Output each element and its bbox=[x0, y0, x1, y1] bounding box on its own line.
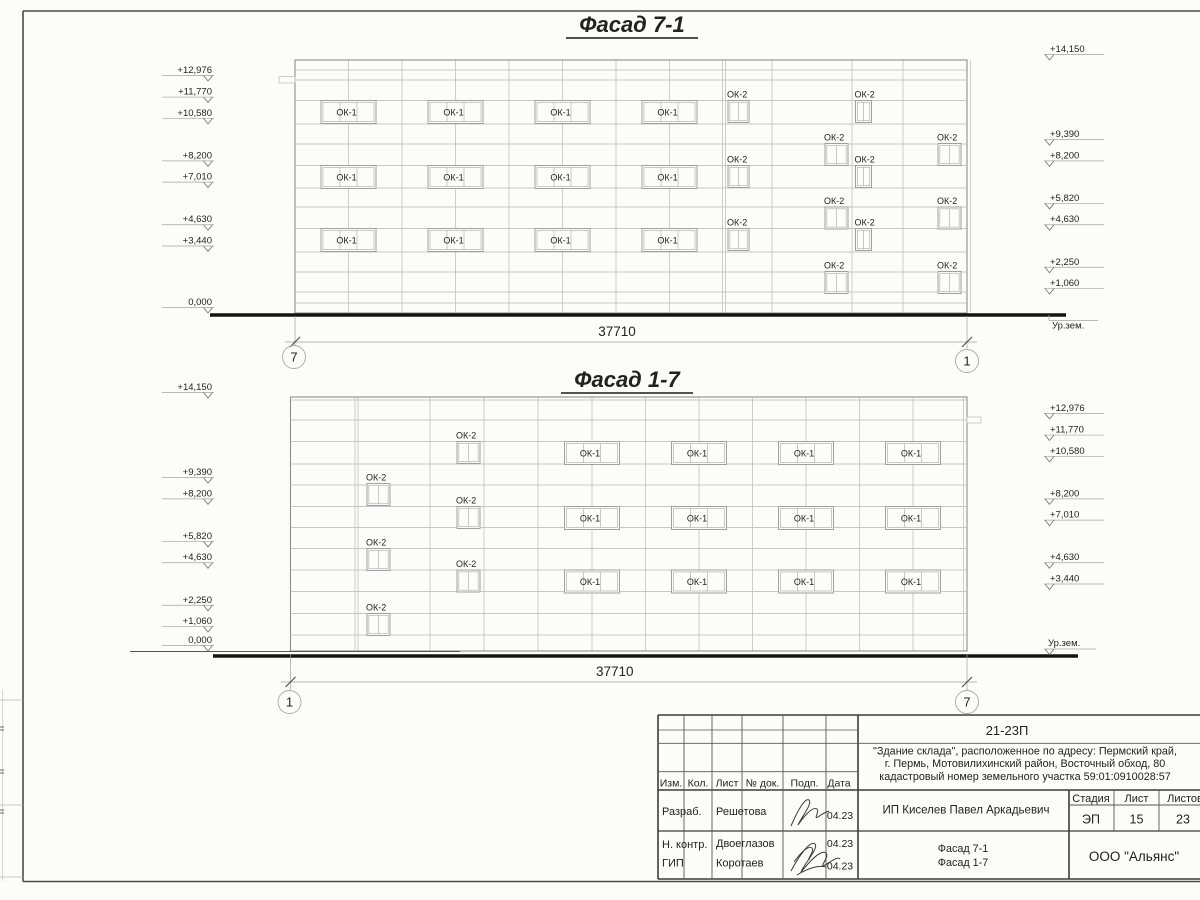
elevation-mark-value: +5,820 bbox=[183, 531, 212, 542]
sheets-header: Листов bbox=[1167, 793, 1200, 805]
window-label-ok2: ОК-2 bbox=[937, 133, 957, 143]
window-label-ok1: ОК-1 bbox=[443, 173, 463, 183]
elevation-mark-value: +11,770 bbox=[1050, 425, 1084, 436]
window-label-ok1: ОК-1 bbox=[657, 236, 677, 246]
drawing-sheet: Фасад 7-1ОК-1ОК-1ОК-1ОК-1ОК-1ОК-1ОК-1ОК-… bbox=[0, 0, 1200, 900]
elevation-mark-value: +9,390 bbox=[183, 467, 212, 478]
elevation-mark-value: +8,200 bbox=[1050, 150, 1079, 161]
stage-value: ЭП bbox=[1082, 813, 1100, 827]
dimension-value: 37710 bbox=[596, 664, 634, 679]
window-label-ok2: ОК-2 bbox=[824, 261, 844, 271]
elevation-mark-value: +14,150 bbox=[1050, 44, 1085, 55]
axis-number: 1 bbox=[963, 354, 970, 369]
project-description-line: кадастровый номер земельного участка 59:… bbox=[879, 771, 1170, 783]
window-label-ok1: ОК-1 bbox=[687, 514, 707, 524]
window-label-ok1: ОК-1 bbox=[687, 577, 707, 587]
revision-header: Изм. bbox=[660, 778, 683, 790]
window-label-ok1: ОК-1 bbox=[580, 577, 600, 587]
client-name: ИП Киселев Павел Аркадьевич bbox=[883, 805, 1050, 817]
axis-number: 1 bbox=[286, 695, 293, 710]
revision-header: Подп. bbox=[791, 778, 819, 790]
doc-number: 21-23П bbox=[986, 723, 1029, 738]
signer-name: Двоеглазов bbox=[716, 838, 775, 850]
window-label-ok2: ОК-2 bbox=[366, 538, 386, 548]
elevation-mark-value: 0,000 bbox=[188, 297, 212, 308]
elevation-mark-value: +5,820 bbox=[1050, 193, 1079, 204]
window-label-ok1: ОК-1 bbox=[336, 173, 356, 183]
window-label-ok1: ОК-1 bbox=[443, 108, 463, 118]
window-label-ok1: ОК-1 bbox=[901, 514, 921, 524]
window-label-ok1: ОК-1 bbox=[794, 514, 814, 524]
signature-date: 04.23 bbox=[827, 861, 853, 873]
window-label-ok1: ОК-1 bbox=[580, 514, 600, 524]
window-label-ok1: ОК-1 bbox=[580, 449, 600, 459]
revision-header: № док. bbox=[746, 778, 780, 790]
dimension-value: 37710 bbox=[598, 324, 636, 339]
window-label-ok2: ОК-2 bbox=[456, 496, 476, 506]
elevation-mark-value: +8,200 bbox=[183, 488, 212, 499]
window-label-ok2: ОК-2 bbox=[727, 155, 747, 165]
revision-header: Кол. bbox=[688, 778, 709, 790]
window-label-ok2: ОК-2 bbox=[727, 90, 747, 100]
elevation-mark-value: +14,150 bbox=[177, 382, 212, 393]
elevation-mark-value: +2,250 bbox=[1050, 257, 1079, 268]
elevation-mark-value: +11,770 bbox=[178, 87, 212, 98]
window-label-ok2: ОК-2 bbox=[824, 133, 844, 143]
company-name: ООО "Альянс" bbox=[1089, 849, 1179, 864]
signature-date: 04.23 bbox=[827, 838, 853, 850]
project-description-line: г. Пермь, Мотовилихинский район, Восточн… bbox=[885, 758, 1166, 770]
elevation-mark-value: +12,976 bbox=[177, 65, 212, 76]
elevation-mark-value: +3,440 bbox=[1050, 573, 1079, 584]
ground-level-label: Ур.зем. bbox=[1052, 321, 1084, 332]
window-label-ok1: ОК-1 bbox=[336, 236, 356, 246]
elevation-mark-value: +4,630 bbox=[1050, 214, 1079, 225]
facade-elevation-drawing: Фасад 7-1ОК-1ОК-1ОК-1ОК-1ОК-1ОК-1ОК-1ОК-… bbox=[0, 0, 1200, 900]
window-label-ok1: ОК-1 bbox=[550, 236, 570, 246]
elevation-mark-value: +10,580 bbox=[1050, 446, 1085, 457]
elevation-mark-value: +4,630 bbox=[183, 552, 212, 563]
elevation-mark-value: +8,200 bbox=[183, 150, 212, 161]
elevation-mark-value: +7,010 bbox=[183, 172, 212, 183]
window-label-ok2: ОК-2 bbox=[366, 473, 386, 483]
revision-header: Лист bbox=[716, 778, 739, 790]
axis-number: 7 bbox=[963, 695, 970, 710]
window-label-ok1: ОК-1 bbox=[550, 108, 570, 118]
signer-role: Разраб. bbox=[662, 806, 702, 818]
window-label-ok2: ОК-2 bbox=[366, 603, 386, 613]
elevation-mark-value: +9,390 bbox=[1050, 129, 1079, 140]
window-label-ok2: ОК-2 bbox=[727, 218, 747, 228]
revision-header: Дата bbox=[827, 778, 850, 790]
window-label-ok1: ОК-1 bbox=[901, 577, 921, 587]
elevation-mark-value: +2,250 bbox=[183, 595, 212, 606]
ground-level-label: Ур.зем. bbox=[1048, 638, 1080, 649]
elevation-mark-value: +3,440 bbox=[183, 235, 212, 246]
elevation-mark-value: +8,200 bbox=[1050, 488, 1079, 499]
elevation-mark-value: +4,630 bbox=[1050, 552, 1079, 563]
window-label-ok1: ОК-1 bbox=[901, 449, 921, 459]
axis-number: 7 bbox=[290, 350, 297, 365]
window-label-ok1: ОК-1 bbox=[336, 108, 356, 118]
elevation-mark-value: +12,976 bbox=[1050, 403, 1085, 414]
signer-role: ГИП bbox=[662, 858, 684, 870]
signer-name: Коротаев bbox=[716, 858, 764, 870]
window-label-ok1: ОК-1 bbox=[443, 236, 463, 246]
signer-name: Решетова bbox=[716, 806, 767, 818]
facade-title: Фасад 1-7 bbox=[574, 367, 681, 392]
window-label-ok1: ОК-1 bbox=[657, 108, 677, 118]
sheets-value: 23 bbox=[1176, 813, 1190, 827]
signature-date: 04.23 bbox=[827, 810, 853, 822]
window-label-ok1: ОК-1 bbox=[657, 173, 677, 183]
stage-header: Стадия bbox=[1072, 793, 1110, 805]
window-label-ok2: ОК-2 bbox=[824, 196, 844, 206]
window-label-ok1: ОК-1 bbox=[794, 577, 814, 587]
drawing-title-line: Фасад 7-1 bbox=[938, 843, 989, 855]
window-label-ok2: ОК-2 bbox=[937, 196, 957, 206]
elevation-mark-value: +7,010 bbox=[1050, 510, 1079, 521]
window-label-ok2: ОК-2 bbox=[855, 218, 875, 228]
window-label-ok2: ОК-2 bbox=[855, 90, 875, 100]
elevation-mark-value: +1,060 bbox=[183, 616, 212, 627]
elevation-mark-value: 0,000 bbox=[188, 635, 212, 646]
window-label-ok1: ОК-1 bbox=[687, 449, 707, 459]
building-outline bbox=[291, 397, 968, 651]
signer-role: Н. контр. bbox=[662, 839, 707, 851]
sheet-header: Лист bbox=[1125, 793, 1149, 805]
window-label-ok2: ОК-2 bbox=[937, 261, 957, 271]
drawing-title-line: Фасад 1-7 bbox=[938, 857, 989, 869]
window-label-ok2: ОК-2 bbox=[456, 559, 476, 569]
elevation-mark-value: +10,580 bbox=[177, 108, 212, 119]
project-description-line: "Здание склада", расположенное по адресу… bbox=[873, 746, 1177, 758]
sheet-value: 15 bbox=[1130, 813, 1144, 827]
elevation-mark-value: +1,060 bbox=[1050, 278, 1079, 289]
window-label-ok2: ОК-2 bbox=[456, 431, 476, 441]
window-label-ok2: ОК-2 bbox=[855, 155, 875, 165]
facade-title: Фасад 7-1 bbox=[579, 12, 684, 37]
window-label-ok1: ОК-1 bbox=[794, 449, 814, 459]
parapet-ledge bbox=[967, 417, 981, 423]
window-label-ok1: ОК-1 bbox=[550, 173, 570, 183]
parapet-ledge bbox=[279, 77, 295, 84]
elevation-mark-value: +4,630 bbox=[183, 214, 212, 225]
